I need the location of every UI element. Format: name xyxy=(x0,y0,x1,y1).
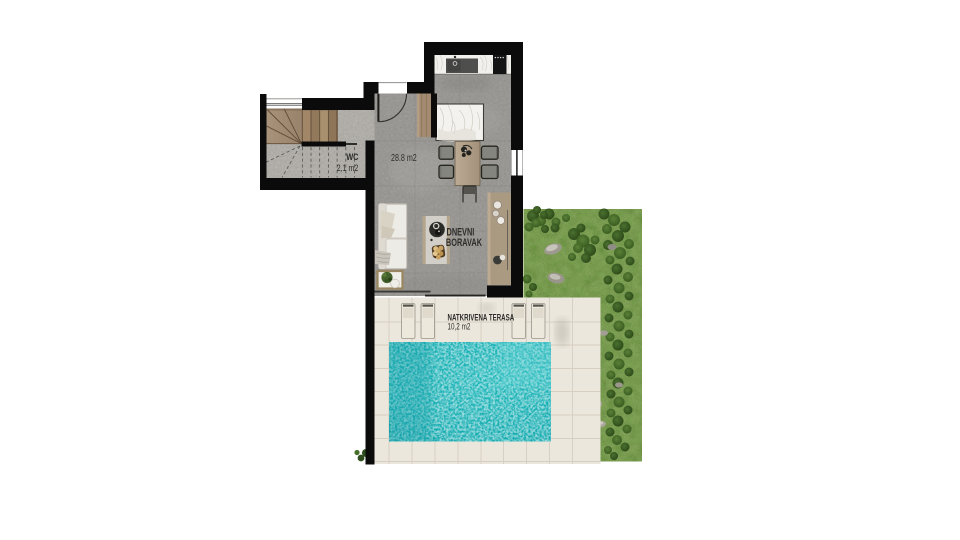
svg-text:WC: WC xyxy=(346,152,358,162)
svg-text:10,2 m2: 10,2 m2 xyxy=(448,321,471,331)
svg-text:BORAVAK: BORAVAK xyxy=(446,236,482,248)
svg-text:2,1 m2: 2,1 m2 xyxy=(337,163,359,173)
svg-text:28.8 m2: 28.8 m2 xyxy=(391,152,417,164)
